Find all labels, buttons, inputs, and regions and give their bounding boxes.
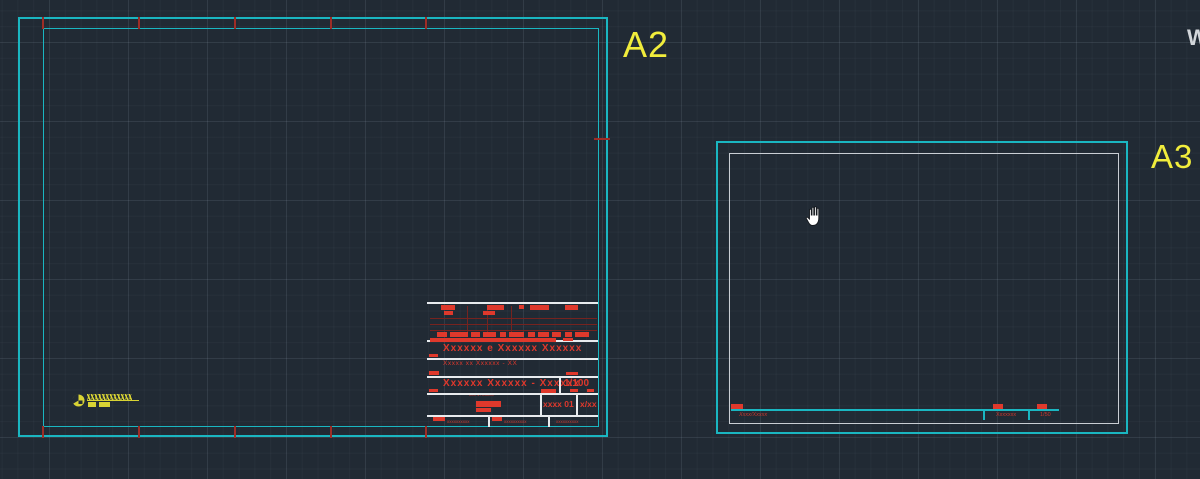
placeholder-text-block: [476, 408, 491, 412]
a3-strip-scale: 1/50: [1040, 413, 1051, 419]
table-grid-line: [511, 306, 512, 332]
trim-tick: [425, 17, 427, 29]
titleblock-scale-value: 1/100: [564, 379, 589, 389]
placeholder-text-block: [430, 338, 556, 342]
pan-hand-cursor: [805, 205, 825, 227]
a3-inner-frame[interactable]: [729, 153, 1119, 424]
trim-tick: [594, 138, 610, 140]
placeholder-text-block: [552, 332, 561, 337]
titleblock-rule: [540, 394, 542, 415]
logo-pie-icon: [71, 393, 86, 408]
placeholder-text-block: [565, 332, 572, 337]
placeholder-text-block: [570, 389, 578, 392]
trim-tick: [42, 426, 44, 438]
trim-tick: [234, 426, 236, 438]
placeholder-text-block: [437, 332, 447, 337]
placeholder-text-block: [563, 338, 573, 341]
placeholder-text-block: [429, 354, 438, 357]
strip-divider: [731, 409, 1059, 411]
placeholder-text-block: [538, 332, 549, 337]
placeholder-text-block: [429, 371, 439, 375]
placeholder-text-block: [441, 305, 455, 310]
trim-tick: [234, 17, 236, 29]
titleblock-footer-cell: xxxxxxxxxx: [504, 420, 527, 425]
placeholder-text-block: [483, 332, 496, 337]
placeholder-text-block: [492, 417, 502, 421]
titleblock-rule: [548, 416, 550, 427]
logo-square: [99, 402, 110, 407]
table-grid-line: [430, 330, 597, 331]
titleblock-project-title: Xxxxxx e Xxxxxx Xxxxxx: [443, 344, 582, 354]
titleblock-footer-cell: xxxxxxxxxx: [447, 420, 470, 425]
placeholder-text-block: [471, 332, 480, 337]
titleblock-rule: [559, 377, 561, 393]
placeholder-text-block: [541, 389, 556, 393]
a3-sheet-label: A3: [1151, 140, 1193, 173]
a2-sheet-label: A2: [623, 27, 669, 63]
placeholder-text-block: [519, 305, 524, 309]
titleblock-sheet-code: xxxx 01: [543, 400, 574, 409]
trim-tick: [138, 426, 140, 438]
placeholder-text-block: [450, 332, 468, 337]
placeholder-text-block: [587, 389, 594, 392]
strip-divider: [983, 410, 985, 420]
titleblock-rule: [427, 302, 598, 304]
trim-tick: [138, 17, 140, 29]
a3-strip-left-note: Xxxx/Xxxxx: [739, 413, 767, 419]
cad-canvas[interactable]: { "colors": { "background": "#212a34", "…: [0, 0, 1200, 479]
placeholder-text-block: [444, 311, 453, 315]
placeholder-text-block: [509, 332, 524, 337]
trim-tick: [425, 426, 427, 438]
placeholder-text-block: [530, 305, 549, 310]
titleblock-rule: [427, 415, 598, 417]
placeholder-text-block: [483, 311, 495, 315]
viewcube-west-label[interactable]: W: [1187, 27, 1200, 49]
trim-tick: [330, 17, 332, 29]
table-grid-line: [430, 318, 597, 319]
a3-strip-center-note: Xxxxxxx: [996, 413, 1016, 419]
table-grid-line: [430, 324, 597, 325]
placeholder-text-block: [487, 305, 504, 310]
titleblock-rule: [576, 394, 578, 415]
titleblock-rule: [488, 416, 490, 427]
placeholder-text-block: [500, 332, 506, 337]
table-grid-line: [467, 306, 468, 332]
placeholder-text-block: [565, 305, 578, 310]
placeholder-text-block: [566, 372, 578, 375]
logo-square: [88, 402, 96, 407]
placeholder-text-block: [433, 417, 445, 421]
placeholder-text-block: [528, 332, 535, 337]
titleblock-subtitle: Xxxxx xx Xxxxxx - XX: [443, 361, 517, 368]
titleblock-rule: [427, 358, 598, 360]
trim-tick: [42, 17, 44, 29]
titleblock-footer-cell: xxxxxxxxxx: [556, 420, 579, 425]
titleblock-rule: [427, 376, 598, 378]
logo-underline: [87, 400, 139, 401]
titleblock-page-no: x/xx: [580, 400, 597, 409]
placeholder-text-block: [429, 389, 438, 392]
trim-tick: [330, 426, 332, 438]
placeholder-text-block: [476, 401, 501, 407]
placeholder-text-block: [575, 332, 589, 337]
titleblock-rule: [427, 393, 598, 395]
strip-divider: [1028, 410, 1030, 420]
